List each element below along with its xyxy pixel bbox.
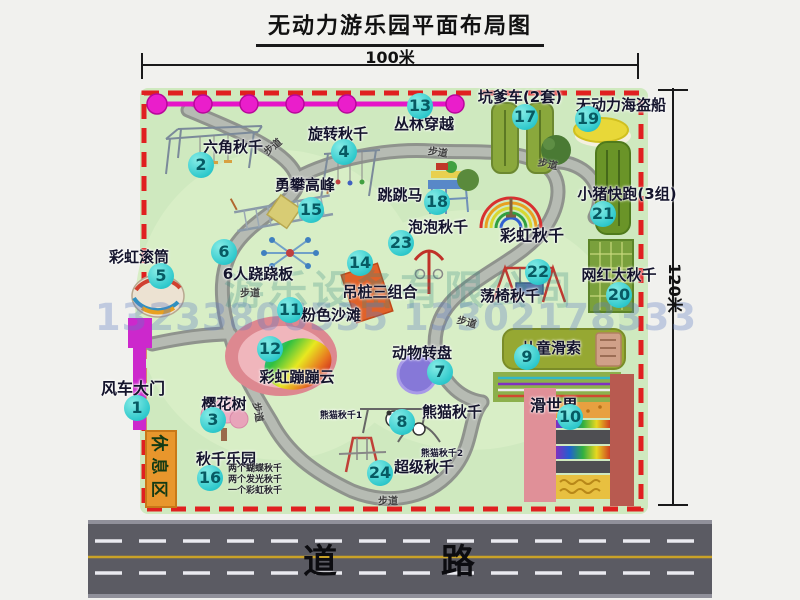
extra-label: 彩虹秋千: [500, 222, 564, 246]
attraction-label-6: 6人跷跷板: [223, 263, 293, 284]
attraction-label-2: 六角秋千: [203, 136, 263, 157]
attraction-badge-6: 6: [211, 239, 237, 265]
attraction-badge-2: 2: [188, 152, 214, 178]
attraction-badge-3: 3: [200, 407, 226, 433]
attraction-label-21: 小猪快跑(3组): [577, 183, 676, 204]
path-label: 步道: [427, 142, 449, 160]
attraction-label-22: 荡椅秋千: [480, 285, 540, 306]
attraction-badge-7: 7: [427, 359, 453, 385]
attraction-badge-16: 16: [197, 465, 223, 491]
path-label: 步道: [260, 134, 285, 158]
attraction-badge-13: 13: [407, 93, 433, 119]
attraction-badge-18: 18: [424, 189, 450, 215]
path-label: 步道: [250, 401, 268, 423]
attraction-badge-4: 4: [331, 139, 357, 165]
attraction-badge-8: 8: [389, 409, 415, 435]
attraction-badge-20: 20: [606, 282, 632, 308]
page-title: 无动力游乐园平面布局图: [256, 8, 544, 47]
attraction-label-15: 勇攀高峰: [275, 174, 335, 195]
height-dimension-label: 120米: [664, 263, 688, 312]
attraction-badge-24: 24: [367, 460, 393, 486]
attraction-badge-5: 5: [148, 263, 174, 289]
attraction-badge-17: 17: [512, 104, 538, 130]
rest-area-label: 休息区: [149, 435, 174, 504]
attraction-badge-12: 12: [257, 336, 283, 362]
attraction-notes-16: 两个蝴蝶秋千两个发光秋千一个彩虹秋千: [228, 464, 282, 497]
attraction-label-18: 跳跳马: [377, 184, 422, 205]
attraction-badge-21: 21: [590, 201, 616, 227]
path-label: 步道: [378, 493, 398, 508]
attraction-badge-14: 14: [347, 250, 373, 276]
attraction-badge-23: 23: [388, 230, 414, 256]
extra-label: 熊猫秋千2: [421, 446, 463, 459]
attraction-label-23: 泡泡秋千: [408, 216, 468, 237]
attraction-badge-11: 11: [277, 297, 303, 323]
playground-layout-map: { "title": "无动力游乐园平面布局图", "dimensions": …: [0, 0, 800, 600]
attraction-label-12: 彩虹蹦蹦云: [259, 366, 334, 387]
width-dimension-label: 100米: [365, 44, 414, 68]
map-stage: 游乐设备有限公司 13233806535 13302178333 无动力游乐园平…: [0, 0, 800, 600]
path-label: 步道: [240, 285, 260, 300]
attraction-badge-9: 9: [514, 344, 540, 370]
attraction-badge-22: 22: [525, 259, 551, 285]
extra-label: 熊猫秋千1: [320, 408, 362, 421]
road-label: 道 路: [303, 534, 521, 583]
attraction-label-11: 粉色沙滩: [301, 304, 361, 325]
attraction-badge-15: 15: [298, 197, 324, 223]
attraction-badge-19: 19: [575, 106, 601, 132]
attraction-badge-1: 1: [124, 395, 150, 421]
attraction-badge-10: 10: [557, 404, 583, 430]
path-label: 步道: [455, 311, 478, 331]
attraction-label-24: 超级秋千: [394, 456, 454, 477]
labels-overlay: 无动力游乐园平面布局图 100米 120米 休息区 道 路 风车大门1六角秋千2…: [0, 0, 800, 600]
attraction-label-8: 熊猫秋千: [422, 401, 482, 422]
attraction-label-14: 吊桩三组合: [342, 281, 417, 302]
path-label: 步道: [537, 154, 560, 173]
